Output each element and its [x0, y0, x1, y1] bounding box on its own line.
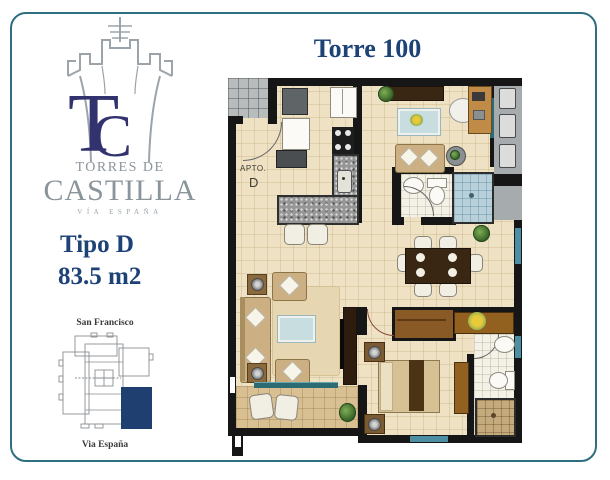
window-left-lower [234, 434, 242, 448]
dining-table [405, 248, 471, 284]
wall-guest-bath-left [392, 167, 401, 224]
unit-type-label: Tipo D [60, 231, 134, 259]
guest-shower-drain [469, 193, 474, 198]
balcony-plant [339, 403, 356, 422]
balcony-glass-door [254, 382, 338, 388]
sink-faucet [342, 177, 345, 180]
site-map-north-label: San Francisco [40, 318, 170, 328]
balcony-lounger-1 [248, 393, 274, 421]
side-table-lamp-bottom [251, 367, 264, 380]
unit-label: APTO. [240, 164, 266, 173]
den-plant [378, 86, 394, 102]
brand-tagline: VÍA ESPAÑA [10, 208, 230, 216]
guest-shower [452, 172, 494, 224]
ledge-cap-top [494, 78, 522, 86]
counter-bar [277, 195, 359, 225]
master-shower-drain [491, 413, 496, 418]
living-coffee-table [278, 316, 315, 342]
tv-screen [340, 319, 344, 369]
tv-console [343, 307, 357, 385]
ac-louver-2 [499, 114, 516, 138]
place-setting-3 [416, 268, 425, 277]
bedroom-closet [392, 307, 456, 341]
unit-area-label: 83.5 m2 [58, 263, 141, 291]
bar-stool-1 [284, 224, 305, 245]
brand-logo: T C TORRES DE CASTILLA VÍA ESPAÑA [10, 14, 230, 224]
wall-lobby-vertical [268, 78, 277, 124]
ledge-cap-mid [494, 174, 522, 186]
burner-4 [345, 144, 351, 150]
elevator-lobby-tiles [228, 78, 270, 118]
balcony-lounger-2 [274, 394, 299, 421]
master-bath-sink [494, 336, 515, 353]
bar-stool-2 [307, 224, 328, 245]
floor-plan: APTO. D [228, 78, 535, 463]
oven [282, 118, 310, 150]
ac-louver-1 [499, 88, 516, 109]
ac-louver-3 [499, 144, 516, 168]
window-dining [515, 228, 521, 264]
tower-title: Torre 100 [240, 34, 495, 64]
nightstand-lamp-2 [368, 418, 381, 431]
place-setting-4 [448, 268, 457, 277]
washer [330, 87, 357, 118]
burner-1 [335, 130, 341, 136]
unit-d-highlight [121, 387, 152, 429]
burner-3 [335, 144, 341, 150]
bed-pillows [380, 362, 393, 411]
sofa-back [240, 297, 245, 381]
desk-accessory [473, 110, 485, 120]
place-setting-2 [448, 253, 457, 262]
monogram-letter-c: C [92, 106, 132, 166]
wall-guest-bath-bottom-b [421, 217, 456, 225]
wall-guest-bath-bottom-a [392, 217, 404, 225]
window-bedroom [410, 436, 448, 442]
unit-letter: D [249, 175, 258, 190]
dining-plant [473, 225, 490, 242]
refrigerator [282, 88, 308, 115]
master-toilet-bowl [489, 372, 508, 389]
guest-toilet-bowl [429, 186, 445, 205]
microwave [276, 150, 307, 168]
dining-chair-4 [439, 282, 457, 297]
master-shower [475, 398, 516, 437]
dining-chair-3 [414, 282, 432, 297]
window-left [229, 376, 236, 394]
washer-door-line [342, 89, 343, 114]
burner-2 [345, 130, 351, 136]
closet-rod [397, 319, 446, 321]
dresser [454, 362, 469, 414]
place-setting-1 [416, 253, 425, 262]
side-table-plant [450, 150, 460, 160]
nightstand-lamp-1 [368, 346, 381, 359]
flower-centerpiece [410, 114, 423, 126]
site-map-building-outline [55, 332, 157, 438]
wall-top [268, 78, 497, 86]
console-flowers [468, 312, 486, 330]
site-map-south-label: Via España [40, 440, 170, 450]
kitchen-sink [337, 170, 352, 193]
window-master-bath [515, 336, 521, 358]
wall-balcony-bottom [228, 428, 362, 436]
desk-computer [472, 92, 485, 101]
side-table-lamp-top [251, 278, 264, 291]
brand-name-line2: CASTILLA [10, 174, 230, 208]
bed-runner [409, 360, 424, 411]
